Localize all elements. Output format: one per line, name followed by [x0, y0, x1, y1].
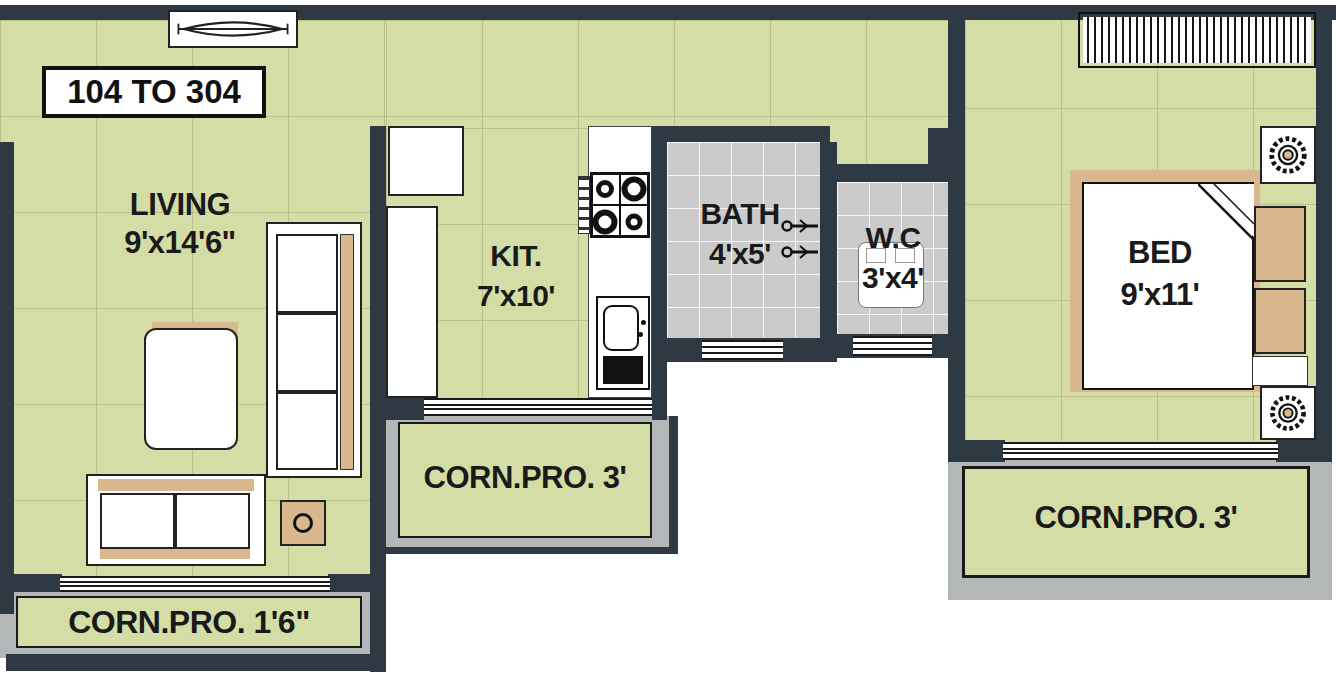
room-dims: 3'x4' — [813, 258, 973, 298]
bath-door — [702, 340, 783, 360]
sofa-long — [266, 222, 362, 478]
sink-tap-dot — [638, 332, 643, 337]
room-name: KIT. — [436, 236, 596, 276]
sofa-cushion — [100, 493, 175, 549]
sofa-cushion — [276, 313, 338, 392]
room-dims: 9'x11' — [1080, 274, 1240, 316]
room-label-living: LIVING 9'x14'6" — [80, 186, 280, 262]
sofa-cushion — [276, 392, 338, 470]
sofa-cushion — [175, 493, 250, 549]
sink-drainboard — [603, 356, 643, 384]
bed-window-sill — [1252, 356, 1308, 386]
sink-basin — [603, 305, 639, 351]
balcony-label-bedroom: CORN.PRO. 3' — [962, 500, 1310, 536]
side-table — [280, 500, 326, 546]
wall — [928, 128, 948, 170]
room-name: BATH — [660, 194, 820, 234]
stove-knobs — [578, 176, 590, 234]
main-door-ornament — [168, 10, 298, 48]
ceiling-fan-icon — [1266, 391, 1310, 435]
wall — [6, 654, 386, 671]
room-name: LIVING — [80, 186, 280, 224]
wall — [948, 440, 1005, 462]
balcony-text: CORN.PRO. 3' — [962, 500, 1310, 536]
wc-door — [853, 336, 932, 356]
fridge-box — [388, 126, 464, 196]
sink-tap-dot — [641, 320, 646, 325]
wardrobe — [1078, 12, 1316, 68]
balcony-text: CORN.PRO. 1'6" — [16, 604, 362, 641]
balcony-label-living: CORN.PRO. 1'6" — [16, 604, 362, 641]
sofa-long-back — [340, 234, 354, 470]
sofa-small-front — [100, 549, 250, 559]
room-label-bath: BATH 4'x5' — [660, 194, 820, 274]
balcony-text: CORN.PRO. 3' — [398, 460, 652, 496]
fan-box-bottom — [1260, 386, 1316, 440]
room-dims: 7'x10' — [436, 276, 596, 316]
unit-label: 104 TO 304 — [67, 73, 241, 111]
kitchen-window — [424, 398, 652, 416]
table-lamp-icon — [293, 513, 313, 533]
wall — [0, 142, 14, 614]
unit-label-box: 104 TO 304 — [42, 66, 266, 118]
room-name: BED — [1080, 232, 1240, 274]
living-window — [60, 576, 330, 592]
fan-box-top — [1260, 126, 1316, 184]
balcony-label-kitchen: CORN.PRO. 3' — [398, 460, 652, 496]
stove — [590, 172, 650, 238]
ceiling-fan-icon — [1265, 132, 1311, 178]
sofa-small-back — [98, 479, 254, 491]
room-dims: 9'x14'6" — [80, 224, 280, 262]
stove-icon — [590, 172, 650, 238]
wall — [652, 126, 830, 142]
room-label-bed: BED 9'x11' — [1080, 232, 1240, 316]
coffee-table — [144, 328, 238, 450]
wall — [1316, 5, 1332, 460]
wall — [328, 574, 386, 592]
wall — [0, 574, 62, 592]
room-label-kitchen: KIT. 7'x10' — [436, 236, 596, 316]
sink — [596, 296, 650, 390]
floor-plan: 104 TO 304 — [0, 0, 1336, 674]
bed-side-table — [1254, 288, 1306, 354]
door-ornament-icon — [170, 12, 296, 46]
room-label-wc: W.C 3'x4' — [813, 218, 973, 298]
room-dims: 4'x5' — [660, 234, 820, 274]
bed-side-table — [1254, 206, 1306, 282]
sofa-cushion — [276, 234, 338, 313]
room-name: W.C — [813, 218, 973, 258]
sofa-small — [86, 474, 266, 566]
sofa-long-seats — [276, 234, 338, 470]
kitchen-door-leaf — [386, 206, 438, 398]
bedroom-window — [1003, 442, 1278, 460]
wall — [1276, 440, 1332, 462]
